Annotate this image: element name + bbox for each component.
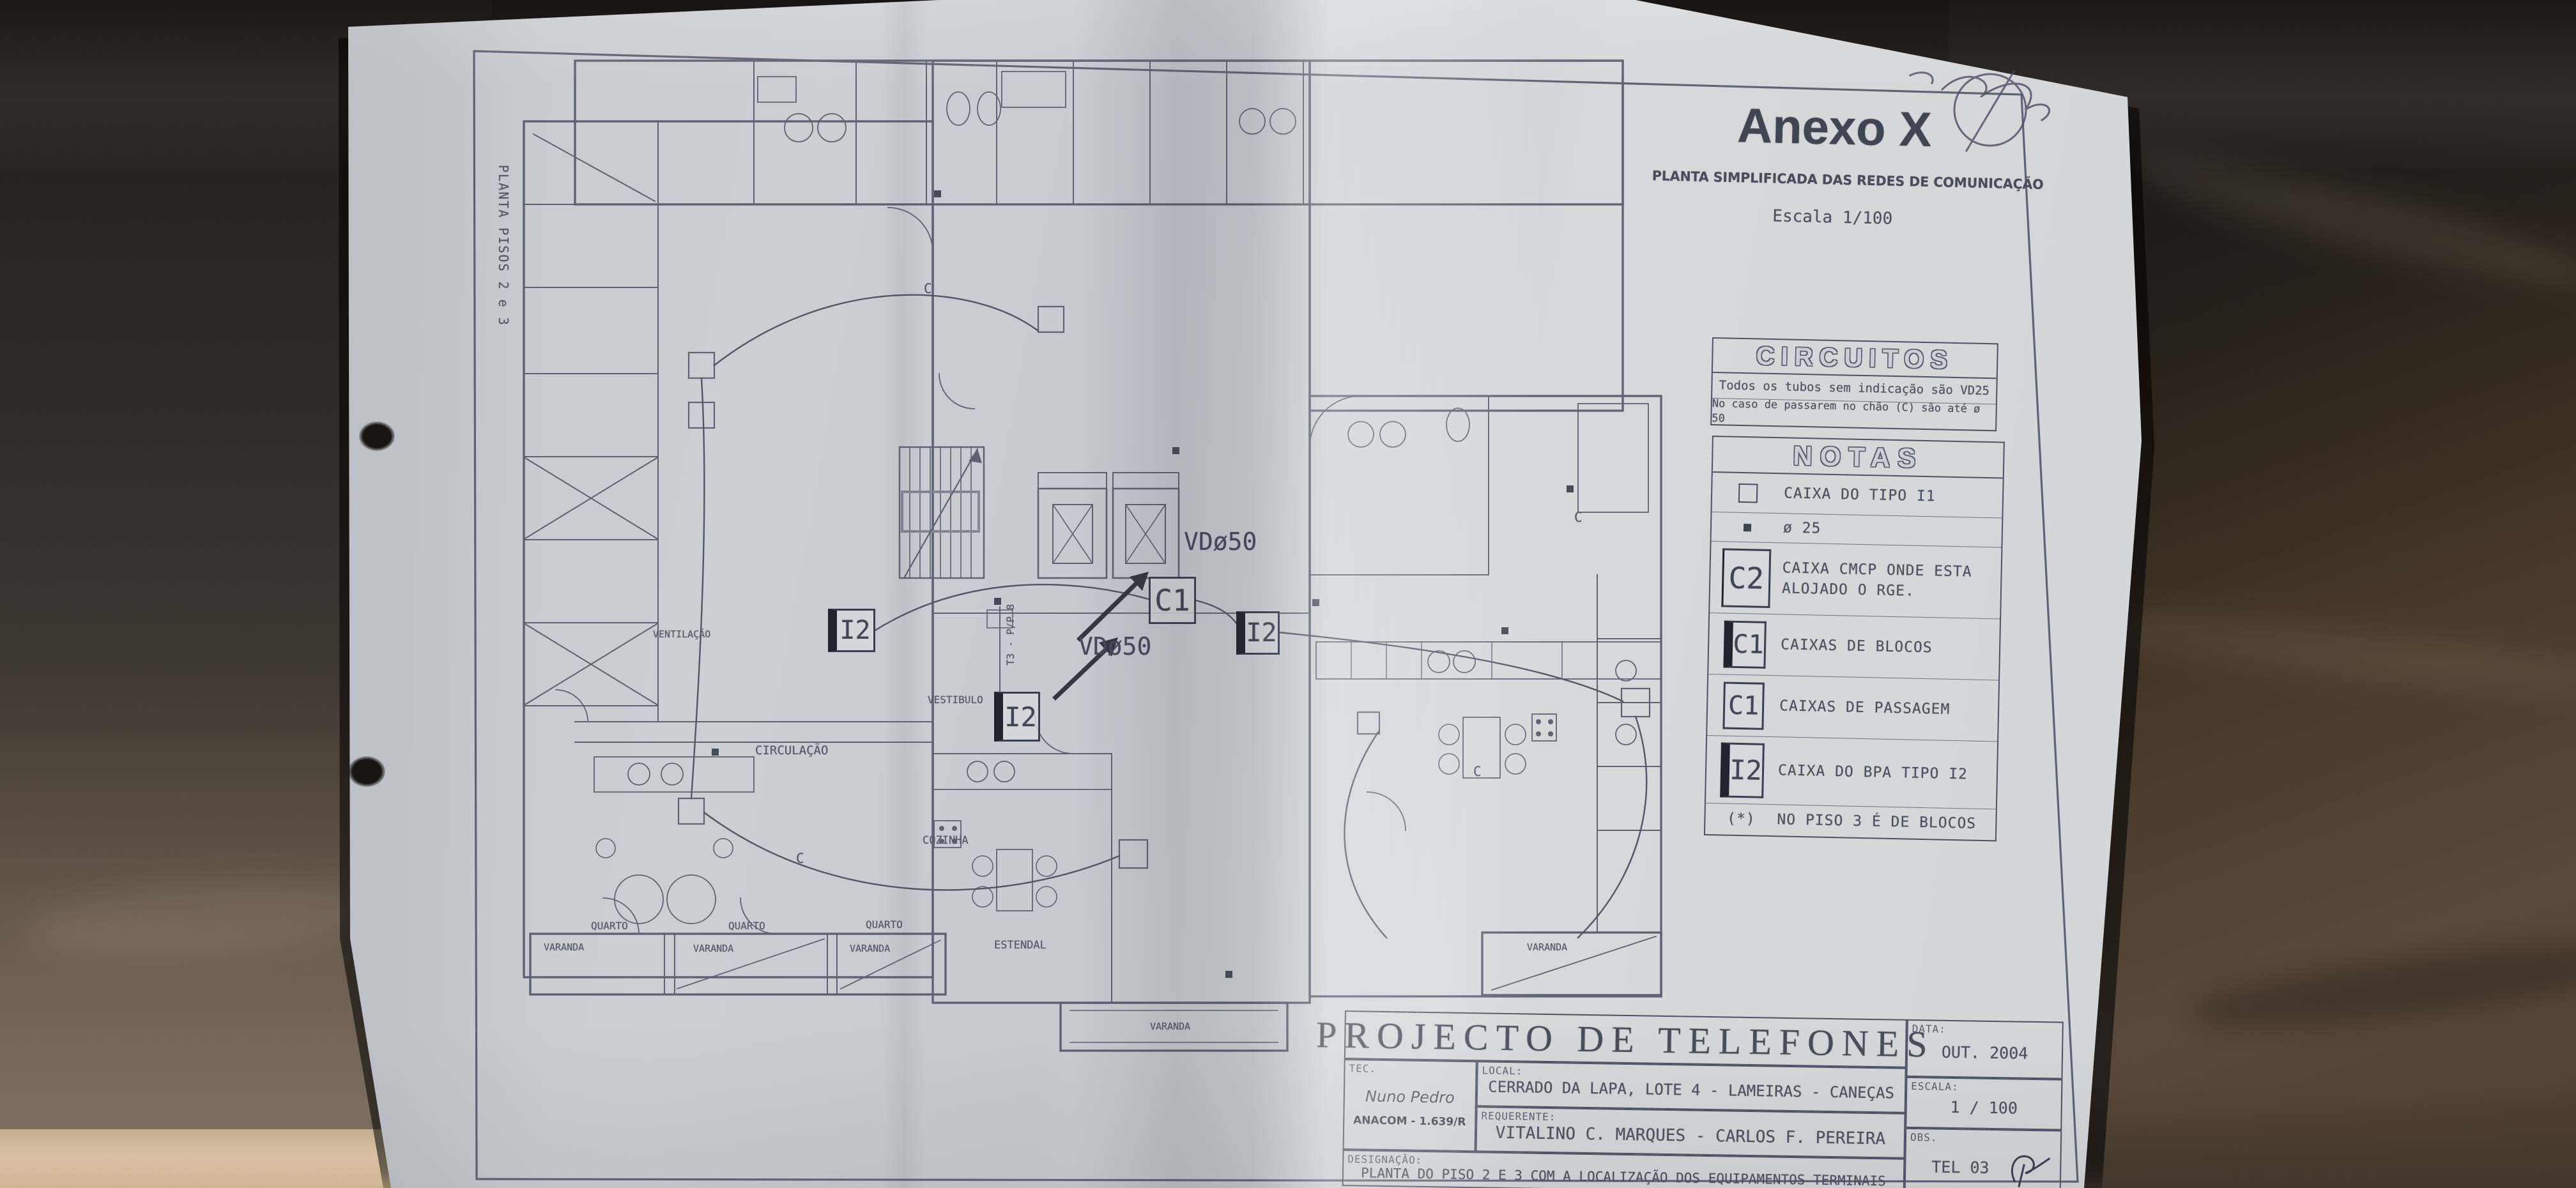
requerente-label: REQUERENTE: <box>1481 1109 1556 1123</box>
room-label-varanda: VARANDA <box>693 943 733 954</box>
photo-of-telephone-project-drawing: PLANTA PISOS 2 e 3 C1 I2 I2 I2 VDø50 VDø… <box>0 0 2576 1188</box>
legend-label: ø 25 <box>1783 518 1821 538</box>
i2-label: I2 <box>839 616 870 645</box>
circuits-note-line2: No caso de passarem no chão (C) são até … <box>1712 397 1996 432</box>
legend-label: NO PISO 3 É DE BLOCOS <box>1777 811 1976 835</box>
escala-label: ESCALA: <box>1911 1080 1959 1093</box>
vd50-label: VDø50 <box>1184 528 1257 556</box>
data-value: OUT. 2004 <box>1908 1042 2062 1063</box>
designacao-value: PLANTA DO PISO 2 E 3 COM A LOCALIZAÇÃO D… <box>1344 1165 1903 1188</box>
annex-title-block: Anexo X PLANTA SIMPLIFICADA DAS REDES DE… <box>1645 96 2021 231</box>
c1-symbol-box: C1 <box>1722 682 1765 729</box>
room-label-quarto: QUARTO <box>591 920 628 932</box>
notes-header: NOTAS <box>1793 441 1924 474</box>
circuits-legend-box: CIRCUITOS Todos os tubos sem indicação s… <box>1710 337 1998 431</box>
room-label-circulacao: CIRCULAÇÃO <box>755 743 828 758</box>
cable-letter: C <box>1473 764 1482 779</box>
sheet-side-label: PLANTA PISOS 2 e 3 <box>496 165 511 326</box>
plan-marker-c1-box: C1 <box>1149 577 1196 624</box>
c2-symbol-box: C2 <box>1721 548 1771 608</box>
c1-symbol-box: C1 <box>1723 620 1767 668</box>
legend-row-caixa-tipo-i1: CAIXA DO TIPO I1 <box>1712 473 2002 518</box>
cable-letter: C <box>1574 510 1583 525</box>
signature-squiggle <box>1996 1142 2054 1188</box>
room-label-ventilacao: VENTILAÇÃO <box>653 628 710 640</box>
plan-marker-i2-box: I2 <box>828 609 875 652</box>
cable-letter: C <box>924 281 932 296</box>
i2-label: I2 <box>1246 618 1276 648</box>
project-title: PROJECTO DE TELEFONES <box>1316 1013 1935 1065</box>
tec-name: Nuno Pedro <box>1345 1087 1475 1107</box>
asterisk-symbol: (*) <box>1727 809 1756 830</box>
room-label-quarto: QUARTO <box>728 920 765 932</box>
local-value: CERRADO DA LAPA, LOTE 4 - LAMEIRAS - CAN… <box>1478 1078 1905 1102</box>
data-label: DATA: <box>1912 1023 1946 1035</box>
c2-symbol: C2 <box>1728 560 1765 595</box>
data-cell: DATA: OUT. 2004 <box>1906 1019 2063 1079</box>
room-label-cozinha: COZINHA <box>923 834 969 847</box>
legend-row-c2: C2 CAIXA CMCP ONDE ESTA ALOJADO O RGE. <box>1710 542 2001 619</box>
escala-cell: ESCALA: 1 / 100 <box>1905 1077 2062 1131</box>
tec-cell: TEC. Nuno Pedro ANACOM - 1.639/R <box>1343 1059 1477 1152</box>
floor-plan-linework <box>0 0 2576 1188</box>
annex-title: Anexo X <box>1647 96 2022 160</box>
tec-label: TEC. <box>1349 1062 1376 1075</box>
legend-label: CAIXAS DE BLOCOS <box>1781 635 1933 658</box>
square-symbol <box>1738 483 1758 503</box>
room-label-varanda: VARANDA <box>544 941 584 953</box>
c1-symbol: C1 <box>1728 690 1759 720</box>
tec-registration: ANACOM - 1.639/R <box>1344 1114 1475 1129</box>
legend-label: CAIXA DO BPA TIPO I2 <box>1778 761 1968 784</box>
legend-row-piso3-note: (*) NO PISO 3 É DE BLOCOS <box>1705 803 1996 840</box>
room-label-vestibulo: VESTIBULO <box>928 694 983 706</box>
local-cell: LOCAL: CERRADO DA LAPA, LOTE 4 - LAMEIRA… <box>1476 1061 1906 1113</box>
obs-label: OBS. <box>1910 1131 1938 1144</box>
circuits-note-line1: Todos os tubos sem indicação são VD25 <box>1719 377 1990 399</box>
notes-legend-box: NOTAS CAIXA DO TIPO I1 ø 25 C2 CAIXA CMC… <box>1704 436 2005 841</box>
local-label: LOCAL: <box>1482 1064 1522 1077</box>
annex-subtitle: PLANTA SIMPLIFICADA DAS REDES DE COMUNIC… <box>1652 168 2015 192</box>
vd50-label: VDø50 <box>1078 632 1151 660</box>
i2-symbol: I2 <box>1729 754 1763 786</box>
escala-value: 1 / 100 <box>1907 1097 2061 1118</box>
requerente-cell: REQUERENTE: VITALINO C. MARQUES - CARLOS… <box>1476 1106 1906 1159</box>
dot-symbol <box>1744 524 1751 531</box>
legend-row-i2: I2 CAIXA DO BPA TIPO I2 <box>1706 736 1997 809</box>
legend-row-c1-passagem: C1 CAIXAS DE PASSAGEM <box>1707 674 1998 742</box>
room-label-estendal: ESTENDAL <box>994 939 1046 952</box>
room-label-varanda: VARANDA <box>850 943 890 954</box>
riser-label: T3 - P/P 8 <box>1004 604 1016 666</box>
title-block: PROJECTO DE TELEFONES TEC. Nuno Pedro AN… <box>1342 1010 2080 1188</box>
room-label-varanda: VARANDA <box>1527 941 1567 953</box>
obs-cell: OBS. TEL 03 <box>1905 1128 2062 1188</box>
legend-label: CAIXA CMCP ONDE ESTA ALOJADO O RGE. <box>1782 559 1987 603</box>
i2-label: I2 <box>1004 701 1037 733</box>
c1-label: C1 <box>1154 583 1190 618</box>
legend-label: CAIXA DO TIPO I1 <box>1784 484 1936 506</box>
room-label-quarto: QUARTO <box>866 918 903 931</box>
i2-symbol-box: I2 <box>1720 742 1765 798</box>
room-label-varanda: VARANDA <box>1150 1021 1190 1032</box>
designacao-label: DESIGNAÇÃO: <box>1347 1153 1422 1166</box>
cable-letter: C <box>796 851 804 866</box>
circuits-header: CIRCUITOS <box>1756 342 1954 374</box>
legend-label: CAIXAS DE PASSAGEM <box>1779 696 1951 720</box>
plan-marker-i2-box: I2 <box>1236 611 1280 655</box>
plan-marker-i2-box: I2 <box>994 692 1040 742</box>
c1-symbol: C1 <box>1733 629 1764 659</box>
legend-row-c1-blocos: C1 CAIXAS DE BLOCOS <box>1708 613 2000 680</box>
requerente-value: VITALINO C. MARQUES - CARLOS F. PEREIRA <box>1477 1123 1904 1148</box>
